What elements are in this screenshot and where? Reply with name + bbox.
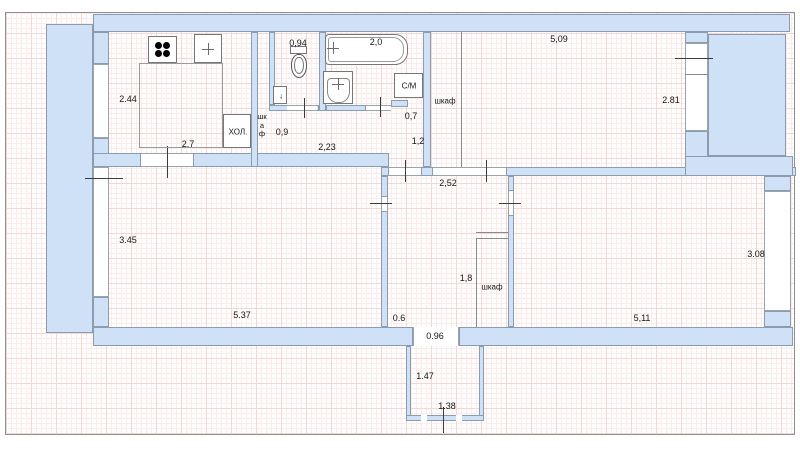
dim-hallway-length: 2,23 <box>318 142 336 152</box>
dim-room2-length: 5,11 <box>634 313 651 323</box>
bath-door-tick <box>380 97 381 117</box>
wall-hall-top-b <box>421 167 433 176</box>
wall-hall-top-a <box>381 167 389 176</box>
floor-plan: ХОЛ. ↓ С/М шкаф 2.44 2.7 0,9 0,94 2,23 2… <box>0 0 800 450</box>
room2-door-tick <box>499 203 521 204</box>
wc-door-opening <box>287 105 317 111</box>
wall-mid-east <box>423 32 431 167</box>
down-arrow-icon: ↓ <box>279 92 283 101</box>
dim-balcony-door: 0.96 <box>426 331 444 341</box>
wall-hall-east-top <box>508 176 514 191</box>
dim-hall-width: 2,52 <box>439 178 457 188</box>
dim-bath-length: 2,0 <box>370 37 383 47</box>
wall-kitchen-bottom-right <box>193 153 389 167</box>
hall-closet-top2 <box>476 238 508 239</box>
wall-living-west-bot <box>93 297 109 327</box>
room2-window <box>764 191 791 311</box>
wall-hall-west-bot <box>381 211 388 327</box>
wall-bottom-band-left <box>93 327 413 346</box>
wall-kitchen-west-top <box>93 32 109 64</box>
kitchen-counter <box>139 63 223 148</box>
wall-room2-win-top <box>764 176 791 191</box>
kitchen-closet-label: шкаф <box>257 113 267 139</box>
living-window-tick <box>85 178 123 179</box>
hall-closet-left <box>476 239 477 327</box>
washing-machine-box: С/М <box>394 73 423 98</box>
wall-hall-east-bot <box>508 215 514 327</box>
troom-window <box>685 43 708 131</box>
dim-living-width: 3.45 <box>119 235 137 245</box>
dim-wall-segment: 0.6 <box>393 313 406 323</box>
down-arrow-box: ↓ <box>273 86 287 104</box>
wall-top-band <box>93 14 790 32</box>
fridge-box: ХОЛ. <box>223 114 251 148</box>
living-door-opening <box>381 197 388 211</box>
wall-balcony-left <box>406 346 411 418</box>
wall-balcony-right <box>479 346 484 418</box>
hall-closet-label: шкаф <box>481 283 502 292</box>
living-door-tick <box>370 203 392 204</box>
wall-room2-win-bot <box>764 311 791 327</box>
troom-window-line <box>685 74 708 75</box>
shaft-block <box>708 34 786 156</box>
dim-living-length: 5.37 <box>233 310 251 320</box>
wc-door-tick <box>304 98 305 118</box>
dim-hallway-width: 1,2 <box>412 136 425 146</box>
kitchen-window <box>93 64 109 138</box>
hall-closet-top1 <box>476 232 508 233</box>
dim-room1-length: 5,09 <box>550 34 568 44</box>
troom-closet-label: шкаф <box>434 97 455 106</box>
dim-hall-closet-depth: 1,8 <box>460 273 473 283</box>
bathtub-faucet-icon <box>327 42 339 54</box>
dim-room1-width: 2.81 <box>662 95 680 105</box>
wall-balcony-bottom <box>406 415 484 421</box>
toilet-icon <box>291 54 307 78</box>
wall-troom-win-top <box>685 32 708 43</box>
living-window <box>93 167 109 297</box>
dim-balcony-depth: 1.47 <box>416 371 434 381</box>
balcony-rail-gap <box>421 415 427 421</box>
wall-bottom-band-right <box>459 327 793 346</box>
dim-sm-niche-width: 0,7 <box>405 111 418 121</box>
stove-icon <box>148 36 177 63</box>
balcony-rail-gap <box>456 415 462 421</box>
dim-kitchen-length: 2.7 <box>182 139 195 149</box>
wall-sm-stub <box>391 100 408 107</box>
troom-closet-line <box>461 32 462 167</box>
washbasin-faucet-icon <box>332 78 344 90</box>
wall-bath-bottom <box>326 105 366 111</box>
bath-door-opening <box>366 105 391 111</box>
plan-canvas: ХОЛ. ↓ С/М шкаф 2.44 2.7 0,9 0,94 2,23 2… <box>5 12 795 435</box>
wall-hall-west-top <box>381 176 388 197</box>
corridor-hall-tick <box>405 160 406 182</box>
stove-burners <box>154 41 171 58</box>
kitchen-sink-faucet-icon <box>202 43 214 55</box>
troom-door-tick <box>486 160 487 182</box>
dim-kitchen-width: 2.44 <box>119 94 137 104</box>
washing-machine-label: С/М <box>402 82 417 91</box>
kitchen-door-tick <box>167 146 168 178</box>
wall-troom-win-bot <box>685 131 708 158</box>
troom-door-opening <box>433 167 506 176</box>
dim-room2-width: 3.08 <box>747 249 765 259</box>
wall-kitchen-east <box>251 32 258 167</box>
dim-balcony-width: 1.38 <box>438 401 456 411</box>
wall-shaft-strip <box>685 156 793 176</box>
dim-wc-width: 0,94 <box>289 38 307 48</box>
dim-closet-width: 0,9 <box>276 127 289 137</box>
troom-window-tick <box>675 58 713 59</box>
fridge-label: ХОЛ. <box>229 128 248 137</box>
wall-kitchen-bottom-left <box>93 153 141 167</box>
